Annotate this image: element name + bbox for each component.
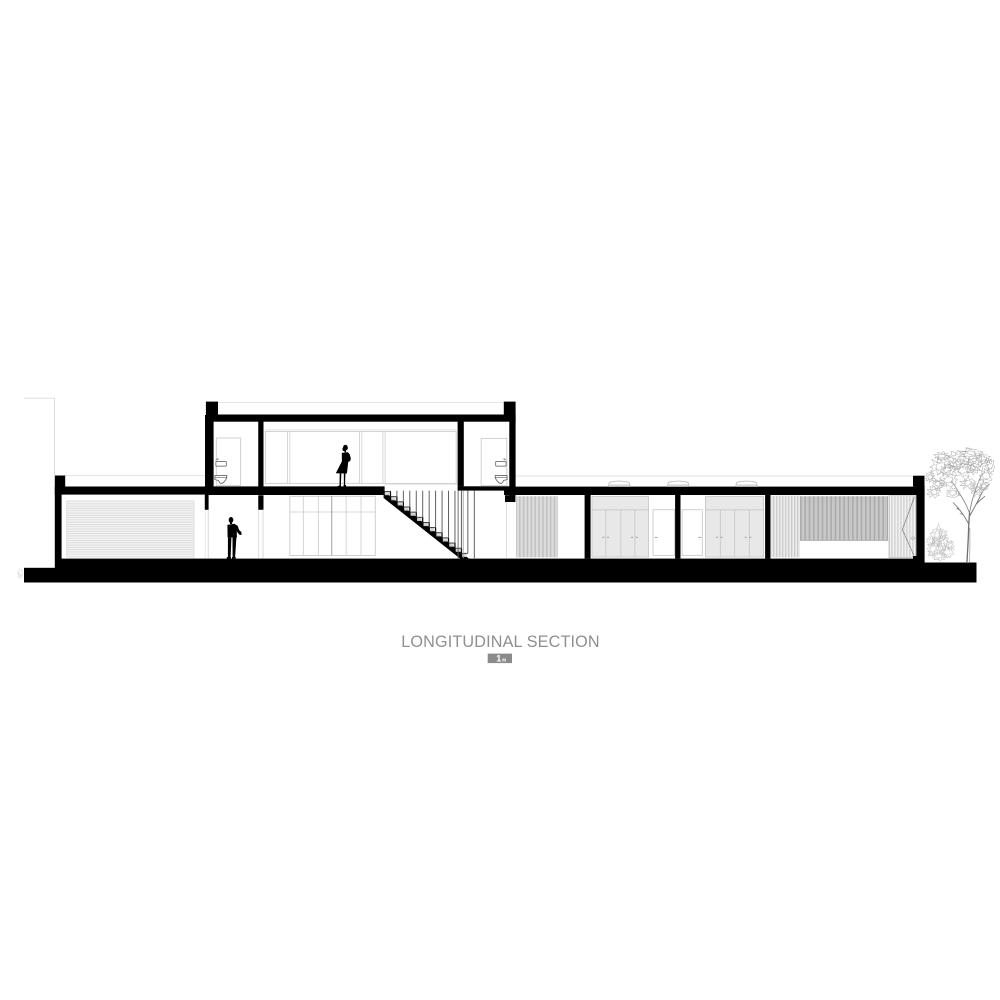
svg-text:LONGITUDINAL SECTION: LONGITUDINAL SECTION xyxy=(401,633,599,651)
svg-text:1: 1 xyxy=(496,653,501,663)
svg-text:M: M xyxy=(502,657,506,662)
